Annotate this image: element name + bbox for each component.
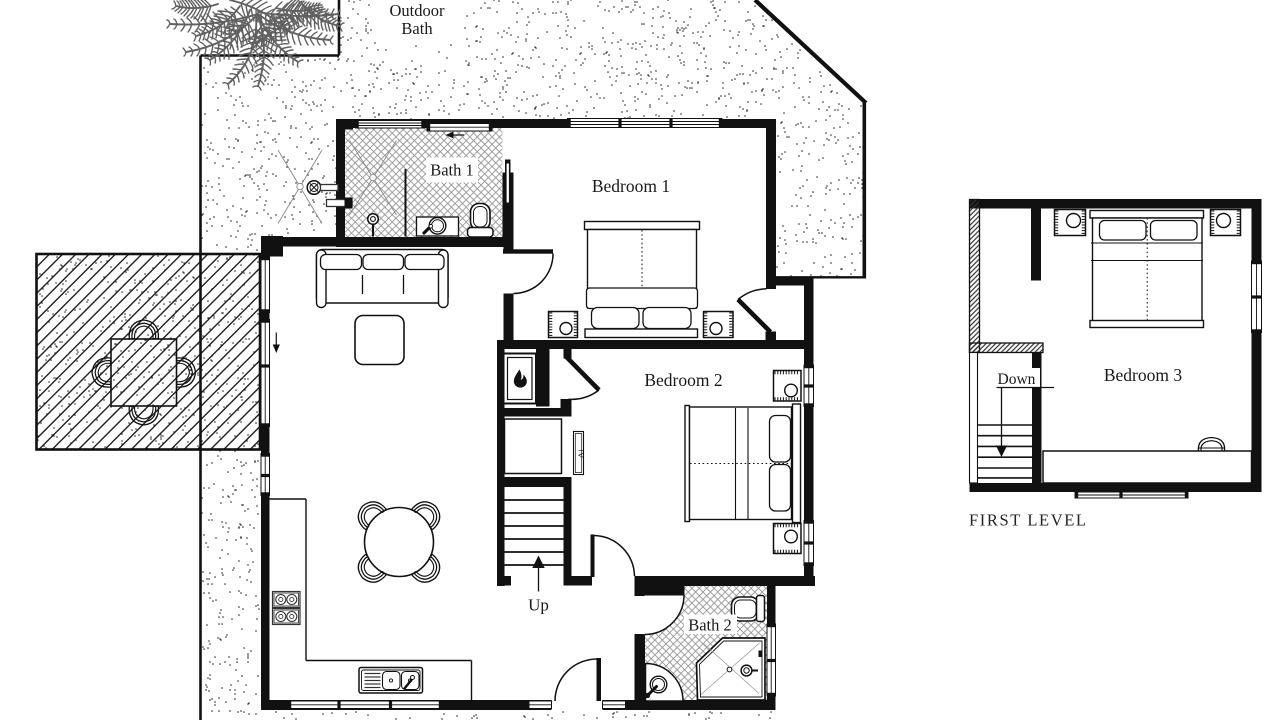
svg-text:Bath 1: Bath 1 [430, 161, 474, 180]
svg-text:Bath 2: Bath 2 [688, 616, 732, 635]
svg-text:Bedroom 2: Bedroom 2 [644, 370, 722, 390]
svg-text:TV: TV [577, 448, 586, 458]
svg-text:Bedroom 1: Bedroom 1 [592, 176, 670, 196]
svg-text:Bath: Bath [401, 19, 433, 38]
svg-text:Down: Down [998, 371, 1036, 388]
svg-text:Outdoor: Outdoor [390, 1, 446, 20]
svg-text:Bedroom 3: Bedroom 3 [1104, 365, 1183, 385]
svg-text:FIRST LEVEL: FIRST LEVEL [969, 511, 1088, 530]
svg-text:Up: Up [528, 596, 549, 615]
